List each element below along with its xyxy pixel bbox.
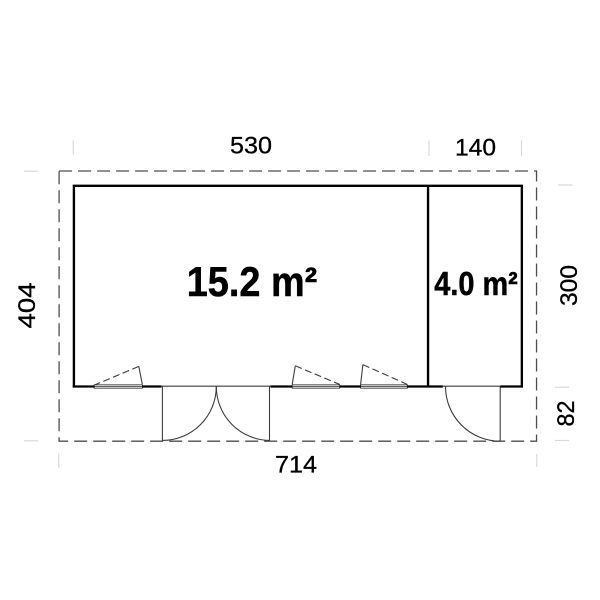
svg-text:404: 404 xyxy=(14,283,41,329)
svg-text:714: 714 xyxy=(275,452,317,479)
svg-text:140: 140 xyxy=(455,135,496,162)
svg-text:15.2 m²: 15.2 m² xyxy=(187,258,318,305)
svg-text:4.0 m²: 4.0 m² xyxy=(434,265,518,302)
svg-text:530: 530 xyxy=(230,133,272,160)
svg-text:300: 300 xyxy=(556,265,583,306)
svg-text:82: 82 xyxy=(553,401,580,427)
